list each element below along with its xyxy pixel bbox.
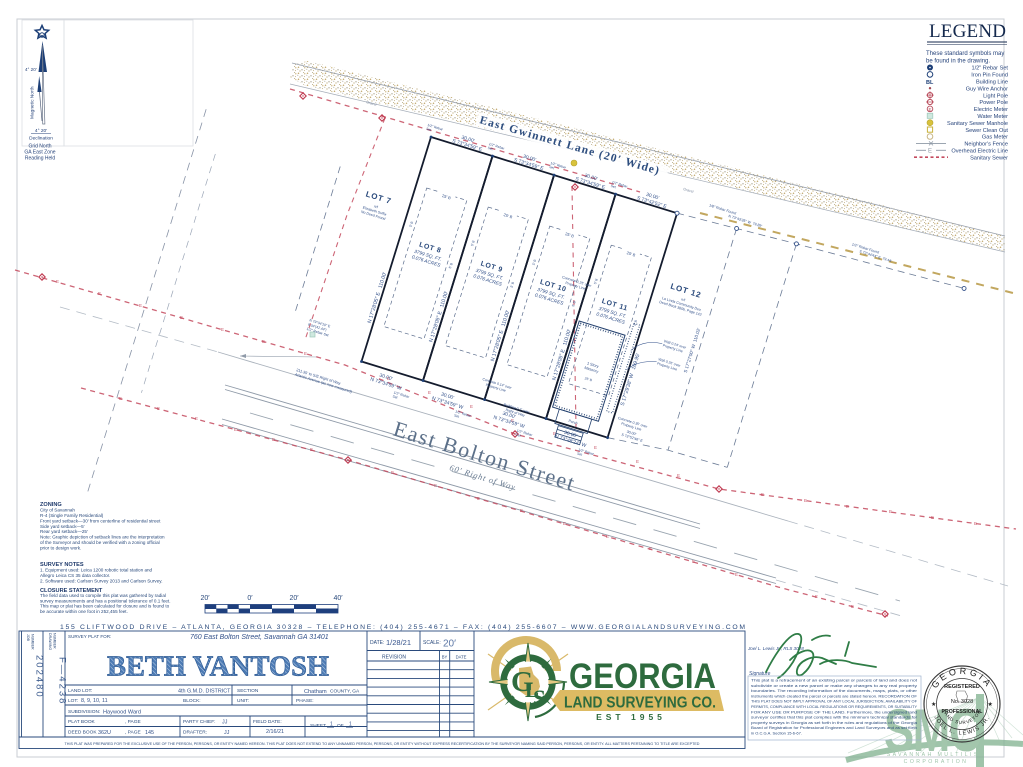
- svg-text:Iron Pin Found: Iron Pin Found: [971, 73, 1008, 79]
- svg-text:Power Pole: Power Pole: [979, 100, 1008, 106]
- svg-text:E: E: [477, 496, 480, 501]
- svg-text:E: E: [563, 521, 566, 526]
- svg-text:E: E: [815, 594, 818, 599]
- svg-text:E: E: [606, 534, 609, 539]
- svg-text:BL: BL: [926, 80, 934, 86]
- svg-text:Sewer Clean Out: Sewer Clean Out: [965, 128, 1008, 134]
- svg-text:Front yard setback—30′ from ce: Front yard setback—30′ from centerline o…: [40, 518, 161, 523]
- svg-text:prior to design work.: prior to design work.: [40, 546, 81, 551]
- svg-text:E: E: [889, 509, 892, 514]
- svg-text:E: E: [520, 508, 523, 513]
- svg-text:155 CLIFTWOOD DRIVE – ATLANTA,: 155 CLIFTWOOD DRIVE – ATLANTA, GEORGIA 3…: [60, 624, 745, 631]
- svg-text:SHEET: SHEET: [310, 723, 326, 729]
- svg-text:E: E: [428, 390, 431, 395]
- svg-text:SAVANNAH MULTILIST: SAVANNAH MULTILIST: [887, 752, 986, 758]
- svg-text:JJ: JJ: [224, 730, 230, 736]
- svg-text:E: E: [304, 351, 307, 356]
- svg-text:These standard symbols may: These standard symbols may: [926, 51, 1004, 57]
- svg-text:BY: BY: [442, 655, 448, 660]
- svg-text:Reading Held: Reading Held: [25, 156, 56, 162]
- svg-text:LAND LOT:: LAND LOT:: [68, 688, 92, 694]
- svg-text:E: E: [234, 427, 237, 432]
- svg-text:Allegro Leica CS 35 data colle: Allegro Leica CS 35 data collector.: [40, 573, 110, 578]
- svg-text:Haywood Ward: Haywood Ward: [103, 710, 141, 716]
- svg-text:E: E: [470, 404, 473, 409]
- svg-text:E: E: [262, 339, 265, 344]
- svg-text:SCALE:: SCALE:: [423, 640, 441, 646]
- svg-text:E: E: [139, 303, 142, 308]
- svg-text:JOB: JOB: [26, 634, 30, 642]
- svg-text:CORPORATION: CORPORATION: [904, 759, 969, 765]
- svg-text:2. Software used: Carlson Sur: 2. Software used: Carlson Survey 2013 an…: [40, 578, 162, 583]
- svg-text:Declination: Declination: [29, 136, 53, 142]
- svg-text:FOR ANY USE OR PURPOSE OF THE: FOR ANY USE OR PURPOSE OF THE LAND. Furt…: [751, 709, 917, 714]
- svg-text:E: E: [761, 492, 764, 497]
- svg-text:8, 9, 10, 11: 8, 9, 10, 11: [81, 698, 108, 704]
- svg-text:FIELD DATE:: FIELD DATE:: [253, 719, 282, 725]
- svg-text:2/16/21: 2/16/21: [266, 729, 284, 735]
- svg-text:Rear yard setback—25′: Rear yard setback—25′: [40, 529, 88, 534]
- svg-text:THIS PLAT DOES NOT IMPLY APPRO: THIS PLAT DOES NOT IMPLY APPROVAL OF ANY…: [751, 699, 918, 704]
- svg-text:, PAGE: , PAGE: [125, 719, 141, 725]
- svg-text:E: E: [928, 149, 932, 155]
- svg-text:DATE: DATE: [456, 655, 467, 660]
- svg-text:BETH VANTOSH: BETH VANTOSH: [107, 651, 329, 683]
- svg-text:THIS PLAT WAS PREPARED FOR THE: THIS PLAT WAS PREPARED FOR THE EXCLUSIVE…: [65, 742, 700, 746]
- svg-text:1: 1: [349, 722, 352, 728]
- svg-text:E: E: [180, 315, 183, 320]
- svg-text:1: 1: [330, 722, 333, 728]
- svg-text:E: E: [692, 559, 695, 564]
- svg-text:in O.C.G.A. Section 15-6-67.: in O.C.G.A. Section 15-6-67.: [751, 731, 802, 736]
- svg-text:E: E: [851, 604, 854, 609]
- svg-text:property surveys in Georgia as: property surveys in Georgia as set forth…: [751, 720, 918, 725]
- svg-text:E: E: [272, 437, 275, 442]
- svg-text:E: E: [735, 572, 738, 577]
- svg-text:Gas Meter: Gas Meter: [982, 135, 1008, 141]
- svg-text:760 East Bolton Street, Savann: 760 East Bolton Street, Savannah GA 3140…: [190, 634, 329, 641]
- svg-text:E: E: [677, 473, 680, 478]
- svg-text:UNIT:: UNIT:: [237, 698, 249, 704]
- svg-text:145: 145: [145, 730, 154, 736]
- svg-text:NUMBER: NUMBER: [53, 633, 57, 649]
- svg-text:Overhead Electric Line: Overhead Electric Line: [951, 149, 1008, 155]
- svg-text:E: E: [56, 279, 59, 284]
- svg-text:1/2" Rebar Set: 1/2" Rebar Set: [971, 66, 1008, 72]
- svg-text:COUNTY, GA: COUNTY, GA: [330, 689, 360, 695]
- svg-text:1/28/21: 1/28/21: [386, 638, 411, 647]
- svg-text:LOT:: LOT:: [68, 698, 78, 704]
- svg-text:E: E: [157, 406, 160, 411]
- svg-text:Neighbor's Fence: Neighbor's Fence: [964, 142, 1008, 148]
- svg-text:1. Equipment used: Leica 1200: 1. Equipment used: Leica 1200 robotic to…: [40, 568, 153, 573]
- svg-text:NUMBER: NUMBER: [31, 634, 35, 650]
- svg-text:DRAWING: DRAWING: [48, 633, 52, 650]
- svg-text:0′: 0′: [247, 595, 253, 602]
- svg-text:OF: OF: [337, 723, 344, 729]
- svg-text:E: E: [928, 107, 931, 112]
- svg-text:DRAFTER:: DRAFTER:: [183, 730, 207, 736]
- svg-text:LEGEND: LEGEND: [929, 21, 1006, 42]
- svg-text:★: ★: [931, 701, 936, 708]
- svg-text:E: E: [974, 521, 977, 526]
- svg-text:of the Surveyor and should be: of the Surveyor and should be verified w…: [40, 540, 160, 545]
- svg-text:★: ★: [988, 701, 993, 708]
- svg-text:E: E: [649, 546, 652, 551]
- svg-text:PARTY CHIEF:: PARTY CHIEF:: [183, 719, 216, 725]
- svg-text:F—4238: F—4238: [57, 657, 68, 705]
- svg-text:E: E: [310, 447, 313, 452]
- svg-text:Chatham: Chatham: [304, 689, 327, 695]
- svg-text:Note: Graphic depiction of set: Note: Graphic depiction of setback lines…: [40, 535, 165, 540]
- svg-text:REVISION: REVISION: [382, 655, 406, 661]
- svg-text:202480: 202480: [34, 655, 45, 699]
- svg-text:S: S: [533, 686, 546, 711]
- svg-text:E: E: [434, 483, 437, 488]
- svg-text:This plat is a retracement of: This plat is a retracement of an existin…: [751, 678, 918, 683]
- svg-text:E: E: [221, 327, 224, 332]
- svg-text:PERMITS, COMPLIANCE WITH LOCAL: PERMITS, COMPLIANCE WITH LOCAL REGULATIO…: [751, 704, 917, 709]
- svg-text:Water Meter: Water Meter: [977, 114, 1008, 120]
- svg-text:20′: 20′: [200, 595, 210, 602]
- svg-text:20′: 20′: [443, 639, 456, 650]
- svg-text:E: E: [804, 498, 807, 503]
- svg-text:DEED BOOK: DEED BOOK: [68, 730, 97, 736]
- svg-text:Joel L. Lewis Jr., RLS 3028: Joel L. Lewis Jr., RLS 3028: [747, 646, 804, 651]
- svg-text:REGISTERED: REGISTERED: [944, 684, 980, 690]
- svg-text:Electric Meter: Electric Meter: [974, 107, 1008, 113]
- svg-text:E: E: [98, 291, 101, 296]
- svg-text:PHASE:: PHASE:: [296, 698, 314, 704]
- svg-text:Guy Wire Anchor: Guy Wire Anchor: [966, 86, 1008, 92]
- svg-text:E: E: [594, 445, 597, 450]
- svg-text:Building Line: Building Line: [976, 80, 1008, 86]
- svg-text:Light Pole: Light Pole: [983, 93, 1008, 99]
- svg-text:Sanitary Sewer Manhole: Sanitary Sewer Manhole: [947, 121, 1008, 127]
- svg-text:SECTION: SECTION: [237, 688, 259, 694]
- svg-text:PLAT BOOK: PLAT BOOK: [68, 719, 96, 725]
- svg-text:20′: 20′: [289, 595, 299, 602]
- svg-text:instruments which created the: instruments which created the parcel or …: [751, 693, 918, 698]
- svg-text:EST 1955: EST 1955: [596, 712, 666, 722]
- svg-text:Side yard setback—5′: Side yard setback—5′: [40, 524, 85, 529]
- svg-text:LAND SURVEYING CO.: LAND SURVEYING CO.: [564, 695, 716, 712]
- svg-text:40′: 40′: [333, 595, 343, 602]
- svg-text:BLOCK:: BLOCK:: [183, 698, 201, 704]
- svg-text:E: E: [119, 396, 122, 401]
- svg-text:E: E: [195, 416, 198, 421]
- svg-text:be accurate within one foot in: be accurate within one foot in 252,455 f…: [40, 609, 128, 614]
- svg-text:4th G.M.D. DISTRICT: 4th G.M.D. DISTRICT: [178, 689, 231, 695]
- svg-text:E: E: [391, 470, 394, 475]
- svg-text:Magnetic North: Magnetic North: [30, 86, 36, 119]
- svg-text:362U: 362U: [98, 730, 111, 736]
- svg-text:SUBDIVISION:: SUBDIVISION:: [68, 709, 100, 715]
- svg-text:4° 20′: 4° 20′: [25, 67, 37, 72]
- svg-text:SURVEY PLAT FOR:: SURVEY PLAT FOR:: [68, 634, 111, 639]
- svg-text:E: E: [846, 504, 849, 509]
- svg-text:4° 20′: 4° 20′: [35, 128, 47, 134]
- svg-text:Board of Registration for Prof: Board of Registration for Professional E…: [751, 725, 917, 730]
- svg-text:JJ: JJ: [222, 720, 228, 726]
- svg-text:boundaries. The recording info: boundaries. The recording information of…: [751, 688, 918, 693]
- svg-text:DATE:: DATE:: [370, 640, 384, 646]
- svg-text:be found in the drawing.: be found in the drawing.: [926, 59, 990, 65]
- svg-text:R-4 (Single Family Residential: R-4 (Single Family Residential): [40, 513, 104, 518]
- svg-text:E: E: [931, 515, 934, 520]
- svg-text:surveyor certifies that this p: surveyor certifies that this plat compli…: [751, 715, 918, 720]
- svg-text:Sanitary Sewer: Sanitary Sewer: [970, 155, 1008, 161]
- svg-text:No. 3028: No. 3028: [951, 699, 973, 705]
- svg-text:E: E: [636, 459, 639, 464]
- svg-text:City of Savannah: City of Savannah: [40, 508, 75, 513]
- svg-text:, PAGE: , PAGE: [125, 730, 141, 736]
- svg-text:subdivide or create a new parc: subdivide or create a new parcel or make…: [751, 683, 917, 688]
